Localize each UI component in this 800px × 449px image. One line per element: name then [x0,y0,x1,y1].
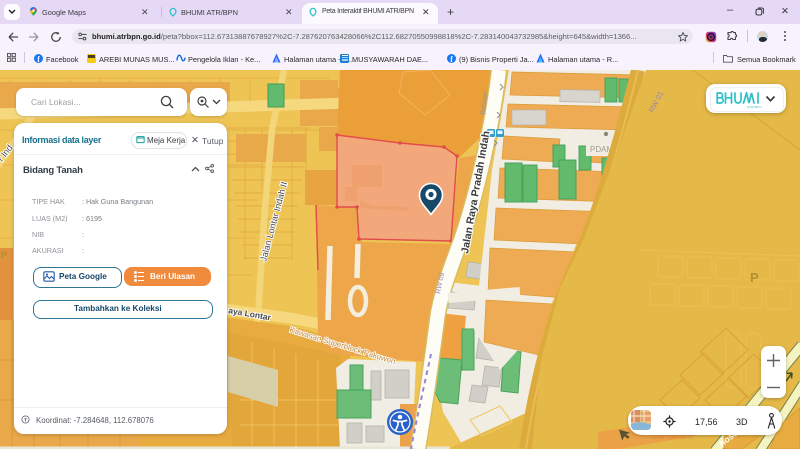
svg-text:P: P [1,250,7,260]
svg-text:P: P [750,270,759,285]
